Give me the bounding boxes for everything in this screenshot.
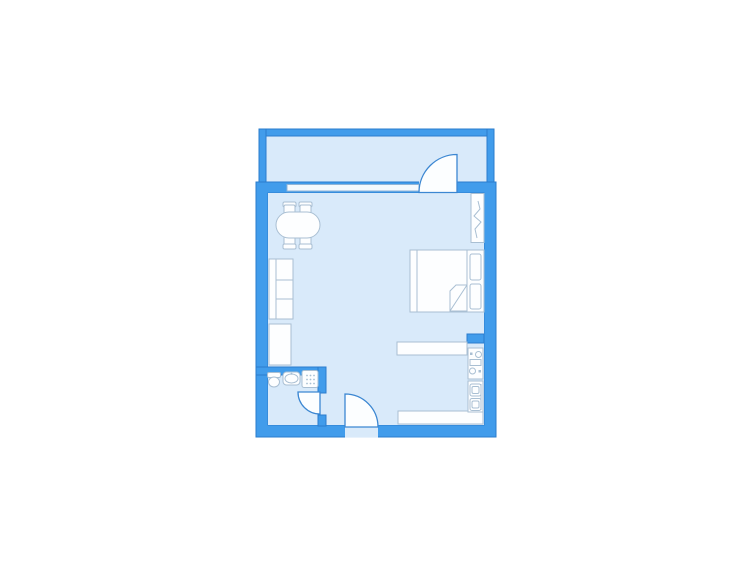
pillow xyxy=(470,284,481,309)
radiator-group xyxy=(471,194,484,243)
shower-dot xyxy=(313,379,315,381)
floor-plan-canvas xyxy=(0,0,755,566)
balcony xyxy=(259,129,494,183)
bathroom-wall-right-upper xyxy=(318,367,326,393)
kitchen-wall-stub xyxy=(467,334,484,343)
stove-mark xyxy=(479,370,482,373)
toilet xyxy=(269,377,280,387)
bathroom xyxy=(268,371,319,388)
worktop xyxy=(398,411,483,424)
shower-dot xyxy=(313,375,315,377)
dining-table xyxy=(276,212,320,238)
kitchen-counter xyxy=(397,342,467,355)
shower-dot xyxy=(310,379,312,381)
stove-mark xyxy=(470,353,473,356)
shower-dot xyxy=(306,375,308,377)
balcony-window xyxy=(287,185,419,192)
shower-dot xyxy=(306,383,308,385)
balcony-wall-left xyxy=(259,129,266,182)
wardrobe xyxy=(269,324,291,365)
shower-dot xyxy=(310,375,312,377)
pillow xyxy=(470,254,481,280)
washbasin-bowl xyxy=(285,374,298,383)
balcony-wall-top xyxy=(259,129,494,136)
radiator xyxy=(471,194,484,243)
dining-chair-backrest xyxy=(299,244,312,249)
shower-dot xyxy=(306,379,308,381)
bed-group xyxy=(410,250,484,312)
left-storage xyxy=(269,259,293,365)
dining-chair-backrest xyxy=(283,244,296,249)
bookshelf xyxy=(269,259,293,319)
floor-plan-page xyxy=(0,0,755,566)
shower-dot xyxy=(313,383,315,385)
bathroom-wall-right-lower xyxy=(318,415,326,426)
shower-dot xyxy=(310,383,312,385)
washbasin-faucet xyxy=(291,373,293,375)
balcony-wall-right xyxy=(487,129,494,182)
